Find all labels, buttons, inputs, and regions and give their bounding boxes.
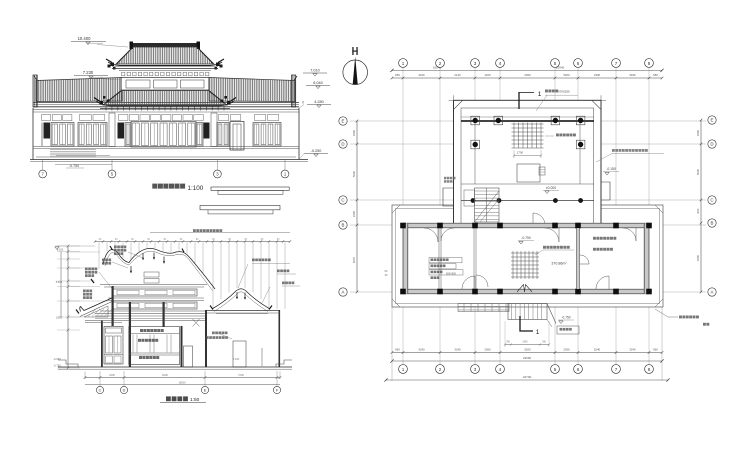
svg-text:23060: 23060 <box>523 356 532 360</box>
svg-text:B: B <box>342 223 345 228</box>
svg-text:2300: 2300 <box>563 348 570 352</box>
svg-text:950: 950 <box>395 73 400 77</box>
svg-text:4: 4 <box>499 367 502 372</box>
svg-text:3: 3 <box>474 367 477 372</box>
svg-text:2400: 2400 <box>109 373 115 377</box>
svg-text:950: 950 <box>395 348 400 352</box>
svg-text:±0.000: ±0.000 <box>546 186 556 190</box>
svg-text:5.400: 5.400 <box>56 280 63 284</box>
svg-text:-0.750: -0.750 <box>69 164 79 168</box>
svg-text:3040: 3040 <box>629 73 636 77</box>
svg-text:1: 1 <box>402 61 405 66</box>
svg-text:C: C <box>341 198 344 203</box>
svg-text:7200: 7200 <box>238 373 244 377</box>
svg-text:C: C <box>710 198 713 203</box>
svg-text:-0.250: -0.250 <box>311 149 322 153</box>
svg-text:570X250: 570X250 <box>558 90 570 94</box>
svg-text:10.400: 10.400 <box>78 36 91 41</box>
svg-text:1:50: 1:50 <box>190 397 200 403</box>
svg-text:18000: 18000 <box>178 380 186 384</box>
svg-text:1100: 1100 <box>484 73 490 77</box>
svg-text:950: 950 <box>653 73 658 77</box>
svg-text:1: 1 <box>536 329 540 336</box>
svg-text:22700: 22700 <box>523 375 532 379</box>
svg-text:2300: 2300 <box>352 129 356 136</box>
svg-text:3240: 3240 <box>454 348 461 352</box>
svg-text:5: 5 <box>554 367 557 372</box>
svg-text:E: E <box>204 389 207 393</box>
svg-text:5000: 5000 <box>696 168 700 175</box>
svg-text:7: 7 <box>615 61 618 66</box>
svg-text:6: 6 <box>577 61 580 66</box>
svg-text:-0.750: -0.750 <box>521 236 531 240</box>
svg-text:D: D <box>341 142 344 147</box>
svg-text:E: E <box>342 119 345 124</box>
svg-text:370.86m²: 370.86m² <box>551 262 567 266</box>
svg-text:8: 8 <box>648 61 651 66</box>
svg-text:2360: 2360 <box>524 73 531 77</box>
svg-text:7: 7 <box>615 367 618 372</box>
svg-text:6.040: 6.040 <box>313 81 323 85</box>
svg-text:3: 3 <box>474 61 477 66</box>
svg-text:5240: 5240 <box>594 348 601 352</box>
svg-text:5200: 5200 <box>563 73 570 77</box>
svg-text:2: 2 <box>439 61 442 66</box>
svg-text:2140: 2140 <box>454 73 461 77</box>
svg-text:5600: 5600 <box>352 170 356 177</box>
svg-text:3240: 3240 <box>418 73 425 77</box>
svg-text:B: B <box>711 221 714 226</box>
svg-text:1: 1 <box>538 91 542 98</box>
svg-text:4: 4 <box>499 61 502 66</box>
svg-text:A: A <box>342 290 345 295</box>
svg-text:2300: 2300 <box>594 73 601 77</box>
svg-text:4350: 4350 <box>696 254 700 261</box>
svg-text:9: 9 <box>302 101 304 105</box>
svg-text:9.100: 9.100 <box>57 248 64 252</box>
svg-text:2.100: 2.100 <box>233 357 240 361</box>
svg-text:D: D <box>710 142 713 147</box>
svg-text:7.230: 7.230 <box>83 70 94 75</box>
svg-text:E: E <box>711 118 714 123</box>
svg-text:5200: 5200 <box>524 348 531 352</box>
svg-text:1.200: 1.200 <box>56 316 63 320</box>
svg-text:C: C <box>99 389 102 393</box>
svg-text:A: A <box>711 290 714 295</box>
svg-text:6: 6 <box>577 367 580 372</box>
svg-text:3240: 3240 <box>418 348 425 352</box>
svg-text:1700: 1700 <box>517 151 524 155</box>
svg-text:8100: 8100 <box>162 373 168 377</box>
svg-text:-0.150: -0.150 <box>606 167 616 171</box>
svg-text:2360: 2360 <box>484 348 491 352</box>
svg-text:2400: 2400 <box>522 342 528 344</box>
svg-text:2300: 2300 <box>352 210 356 217</box>
svg-text:3240: 3240 <box>629 348 636 352</box>
svg-text:1: 1 <box>402 367 405 372</box>
svg-text:950: 950 <box>653 348 658 352</box>
svg-text:900: 900 <box>696 208 700 213</box>
svg-text:-0.750: -0.750 <box>561 316 570 320</box>
svg-text:4.280: 4.280 <box>314 100 324 104</box>
svg-text:8: 8 <box>648 367 651 372</box>
svg-text:D: D <box>123 389 126 393</box>
svg-text:1:100: 1:100 <box>188 185 204 192</box>
svg-text:5: 5 <box>554 61 557 66</box>
svg-text:6670: 6670 <box>352 256 356 263</box>
svg-text:7.010: 7.010 <box>310 69 320 73</box>
svg-text:2: 2 <box>439 367 442 372</box>
svg-text:2300: 2300 <box>696 129 700 136</box>
svg-text:600X600: 600X600 <box>446 272 457 275</box>
svg-text:-0.050: -0.050 <box>53 357 61 361</box>
